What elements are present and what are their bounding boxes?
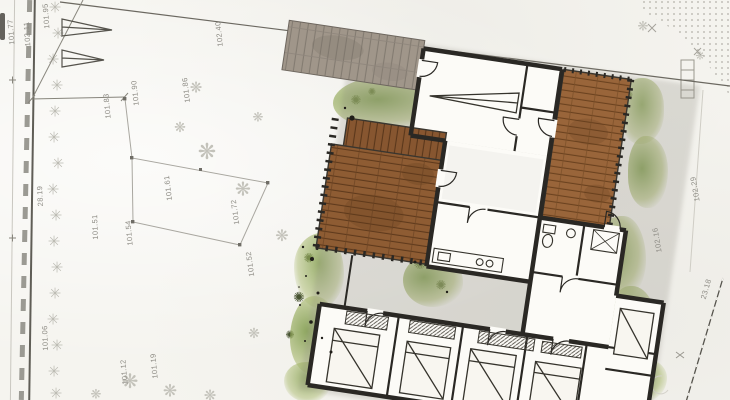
elevation-label: 101.95: [41, 3, 52, 29]
elevation-label: 101.06: [40, 325, 50, 351]
elevation-label: 101.86: [180, 77, 192, 103]
elevation-label: 101.72: [229, 199, 241, 225]
elevation-label: 23.18: [699, 278, 713, 300]
elevation-label: 101.54: [123, 220, 134, 246]
elevation-label: 101.61: [162, 175, 174, 201]
labels-layer: 101.95101.77102.11102.40101.83101.90101.…: [0, 0, 730, 400]
elevation-label: 102.11: [22, 21, 33, 46]
elevation-label: 101.19: [148, 353, 159, 379]
elevation-label: 101.90: [129, 80, 141, 106]
elevation-label: 102.29: [688, 176, 701, 203]
elevation-label: 101.83: [101, 93, 112, 119]
elevation-label: 101.77: [6, 19, 17, 45]
elevation-label: 102.40: [213, 21, 225, 47]
elevation-label: 101.52: [244, 251, 256, 277]
elevation-label: 101.51: [90, 214, 100, 240]
site-plan-canvas: ✳✳✳✳✳✳✳✳✳✳✳✳✳✳✳✳❋❋❋❋❋❋❋❋❋❋❋❋❋✺✺✺✺✺✺✺✺: [0, 0, 730, 400]
elevation-label: 102.16: [650, 227, 663, 254]
elevation-label: 28.19: [35, 185, 45, 206]
elevation-label: 101.12: [118, 359, 129, 385]
